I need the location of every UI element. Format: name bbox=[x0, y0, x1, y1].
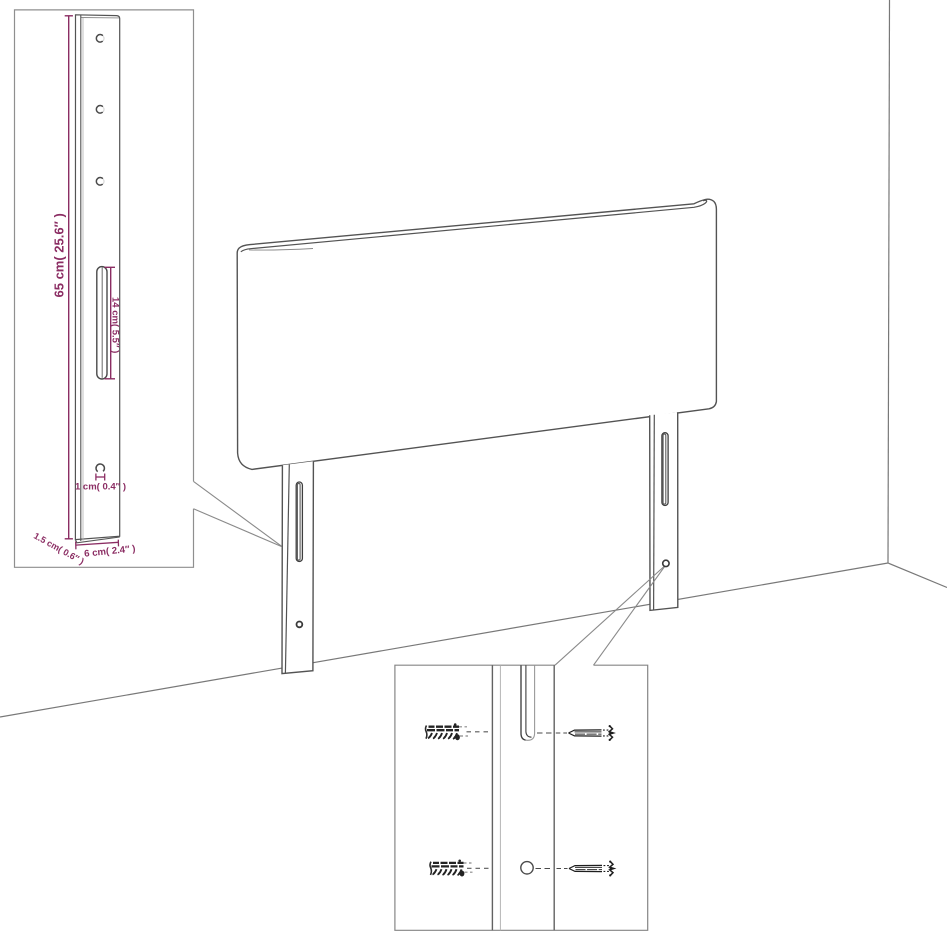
svg-text:1 cm( 0.4″ ): 1 cm( 0.4″ ) bbox=[75, 482, 126, 493]
svg-text:65 cm( 25.6″ ): 65 cm( 25.6″ ) bbox=[52, 213, 67, 297]
svg-text:14 cm( 5.5″ ): 14 cm( 5.5″ ) bbox=[110, 297, 121, 353]
